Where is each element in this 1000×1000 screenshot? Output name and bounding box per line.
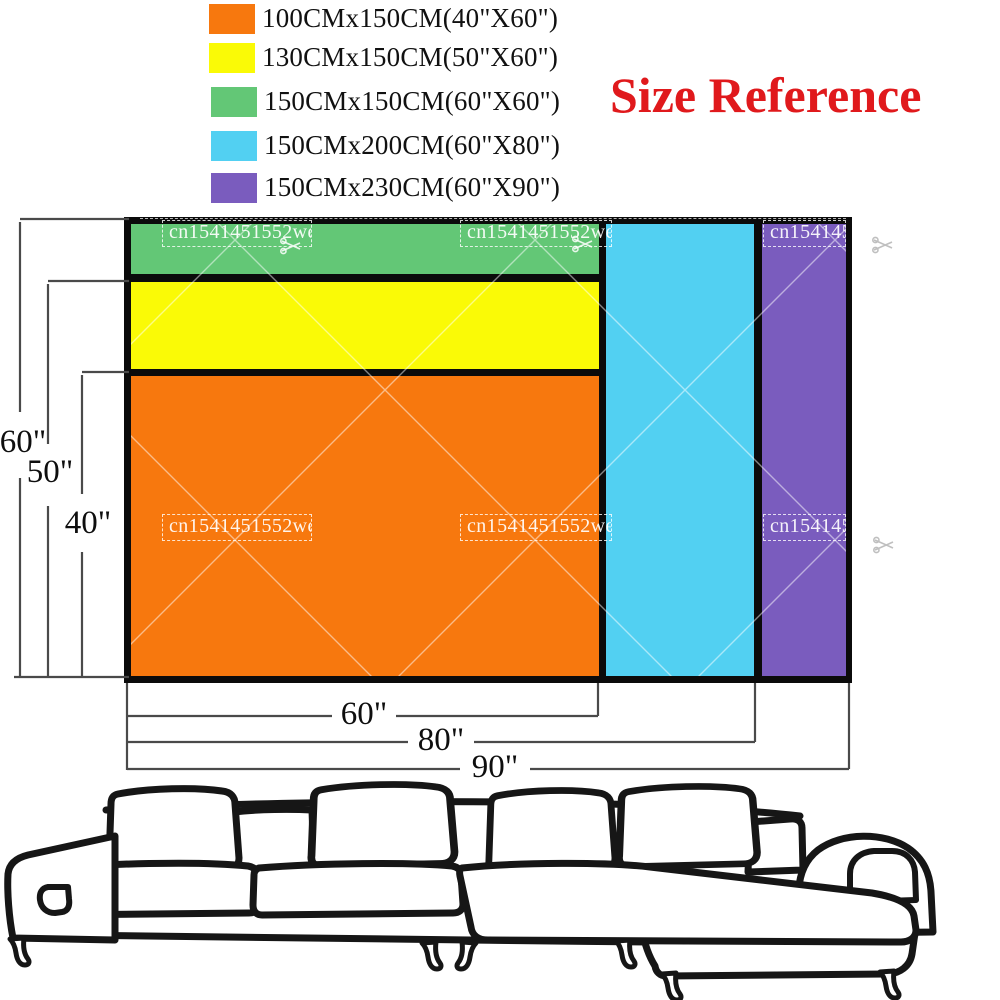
watermark-box: cn1541451552wedk <box>460 220 612 247</box>
scissors-icon <box>875 835 894 850</box>
sofa-arm-roll <box>40 887 69 913</box>
legend-swatch-green <box>211 87 257 117</box>
scissors-icon <box>873 237 892 252</box>
watermark-box: cn1541451552wedk <box>162 220 312 247</box>
sofa-leg <box>422 942 441 969</box>
watermark-text: cn1541451552wedk <box>169 821 312 843</box>
chaise-arm-roll <box>850 851 916 902</box>
sofa-leg <box>457 942 476 969</box>
sofa-pillow <box>489 791 615 873</box>
sofa-leg <box>10 938 29 965</box>
legend-item: 100CMx150CM(40"X60") <box>209 3 558 34</box>
watermark-text: cn1541451552wedk <box>169 515 312 537</box>
sofa-illustration <box>0 780 1000 1000</box>
sofa-left-arm <box>8 836 115 940</box>
scissors-icon <box>575 835 594 850</box>
page-title: Size Reference <box>610 66 921 124</box>
legend-label: 150CMx150CM(60"X60") <box>264 86 560 117</box>
sofa-pillow <box>311 785 454 867</box>
legend-item: 150CMx230CM(60"X90") <box>211 172 560 203</box>
legend-swatch-purple <box>211 173 257 203</box>
chaise-arm <box>799 836 933 934</box>
legend-label: 130CMx150CM(50"X60") <box>262 42 558 73</box>
watermark-text: cn1541451552wedk <box>169 221 312 243</box>
legend-item: 150CMx150CM(60"X60") <box>211 86 560 117</box>
sofa-corner-back <box>748 819 803 872</box>
region-yellow-strip <box>131 282 599 369</box>
dim-label-bottom-90: 90" <box>460 749 530 786</box>
sofa-base <box>44 898 650 942</box>
sofa-leg <box>616 940 635 967</box>
watermark-text: cn1541451552wedk <box>467 515 612 537</box>
watermark-box: cn1541451552wedk <box>763 220 846 247</box>
sofa-back-line <box>106 802 800 816</box>
legend-label: 150CMx200CM(60"X80") <box>264 130 560 161</box>
size-reference-page: 100CMx150CM(40"X60") 130CMx150CM(50"X60"… <box>0 0 1000 1000</box>
region-cyan-column <box>606 224 754 676</box>
region-purple-column <box>762 224 846 676</box>
dim-label-left-40: 40" <box>53 505 123 542</box>
sofa-seat-cushion <box>253 864 463 915</box>
legend-swatch-yellow <box>209 43 255 73</box>
watermark-text: cn1541451552wedk <box>770 221 846 243</box>
watermark-box: cn1541451552wedk <box>162 820 312 847</box>
legend-swatch-cyan <box>211 131 257 161</box>
dim-label-bottom-60: 60" <box>329 696 399 733</box>
sofa-leg <box>880 971 899 998</box>
legend-swatch-orange <box>209 4 255 34</box>
watermark-text: cn1541451552wedk <box>467 221 612 243</box>
legend-item: 130CMx150CM(50"X60") <box>209 42 558 73</box>
chaise-seat <box>460 863 916 942</box>
legend-item: 150CMx200CM(60"X80") <box>211 130 560 161</box>
watermark-box: cn1541451552wedk <box>460 514 612 541</box>
sofa-pillow <box>619 786 757 866</box>
watermark-text: cn1541451552wedk <box>770 515 846 537</box>
chaise-base <box>640 888 916 976</box>
dim-label-left-50: 50" <box>15 454 85 491</box>
watermark-dash-line <box>140 218 846 219</box>
sofa-leg <box>662 973 681 1000</box>
watermark-box: cn1541451552wedk <box>763 514 846 541</box>
legend-label: 100CMx150CM(40"X60") <box>262 3 558 34</box>
scissors-icon <box>874 537 893 552</box>
watermark-box: cn1541451552wedk <box>162 514 312 541</box>
legend-label: 150CMx230CM(60"X90") <box>264 172 560 203</box>
sofa-seat-cushion <box>40 863 259 915</box>
